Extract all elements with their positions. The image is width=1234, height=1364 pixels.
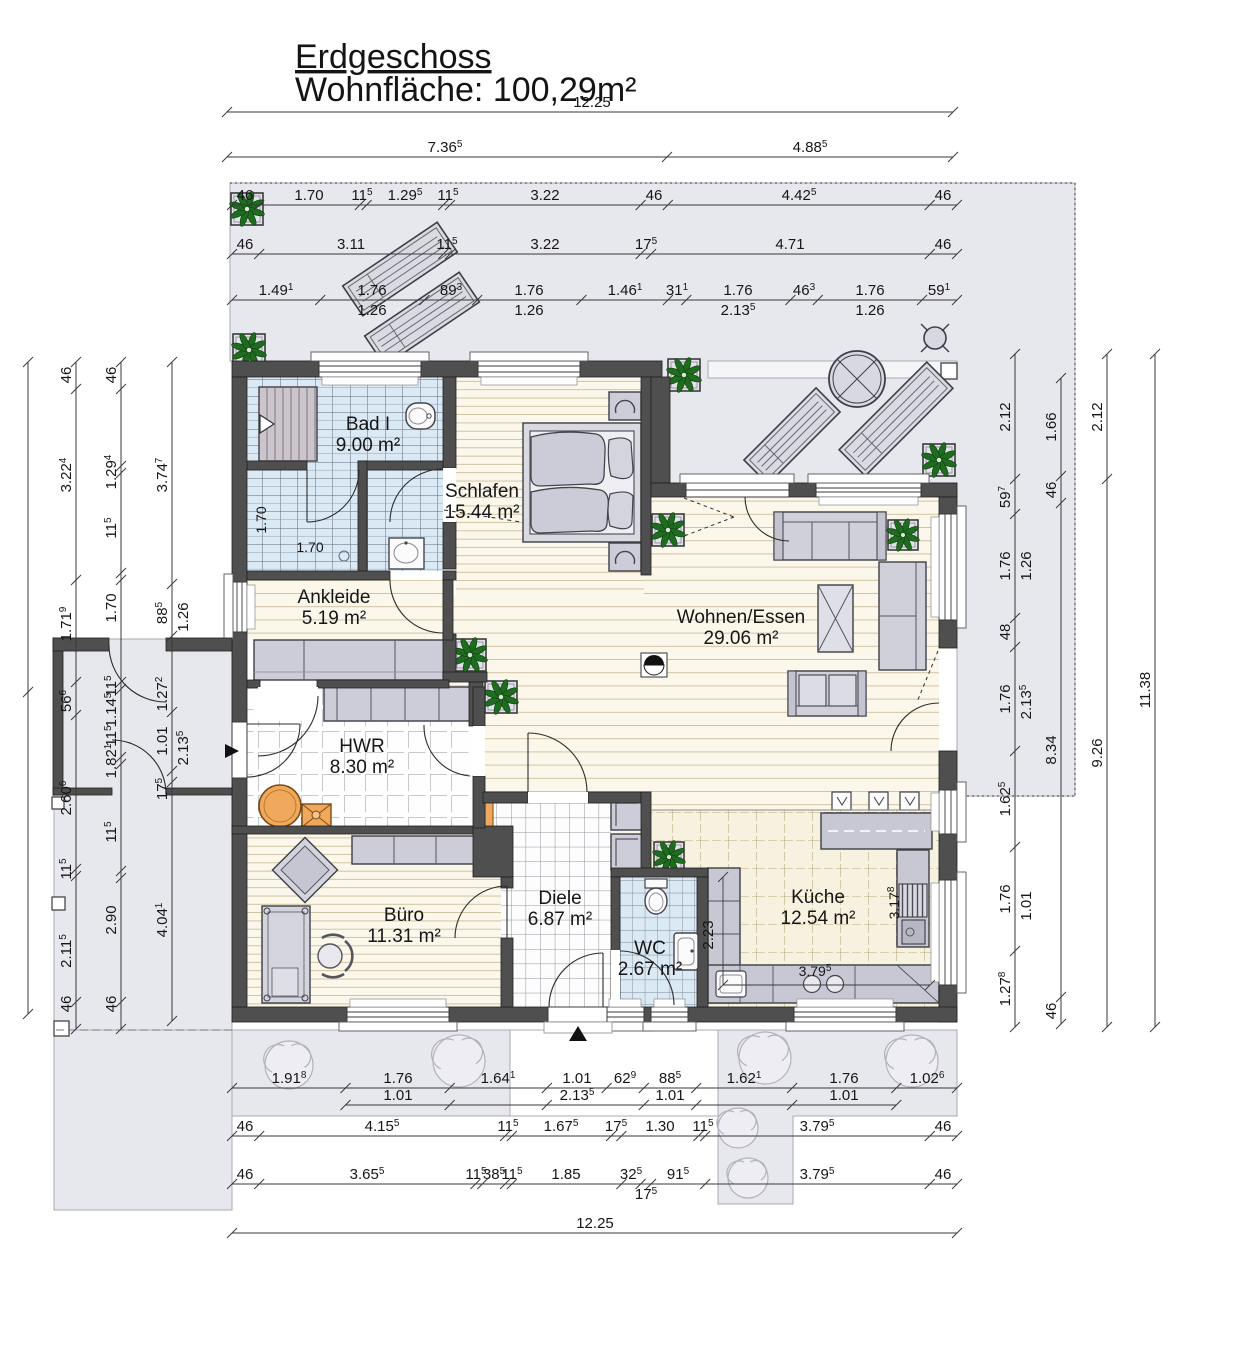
svg-text:1.01: 1.01: [562, 1070, 591, 1087]
svg-text:46: 46: [646, 187, 663, 204]
svg-text:1.85: 1.85: [551, 1166, 580, 1183]
svg-text:1.76: 1.76: [723, 282, 752, 299]
svg-text:1.70: 1.70: [294, 187, 323, 204]
svg-text:1.01: 1.01: [655, 1087, 684, 1104]
svg-text:1.26: 1.26: [855, 302, 884, 319]
svg-text:Ankleide: Ankleide: [298, 587, 371, 608]
svg-text:Wohnen/Essen: Wohnen/Essen: [677, 607, 806, 628]
svg-text:11.31 m²: 11.31 m²: [367, 926, 441, 947]
svg-text:46: 46: [1043, 482, 1060, 499]
svg-text:46: 46: [935, 1166, 952, 1183]
svg-text:46: 46: [58, 367, 75, 384]
svg-text:15.44 m²: 15.44 m²: [445, 502, 520, 523]
svg-text:1.26: 1.26: [175, 602, 192, 631]
svg-text:46: 46: [935, 187, 952, 204]
svg-text:Büro: Büro: [384, 905, 424, 926]
svg-text:46: 46: [237, 1166, 254, 1183]
svg-text:46: 46: [935, 236, 952, 253]
svg-text:46: 46: [237, 236, 254, 253]
svg-text:Bad I: Bad I: [346, 414, 390, 435]
svg-text:1.26: 1.26: [1018, 551, 1035, 580]
svg-text:1.01: 1.01: [154, 726, 171, 755]
svg-text:46: 46: [237, 187, 254, 204]
svg-text:3.11: 3.11: [337, 236, 365, 253]
svg-text:Diele: Diele: [538, 888, 581, 909]
svg-text:1.76: 1.76: [829, 1070, 858, 1087]
svg-text:1.30: 1.30: [645, 1118, 674, 1135]
svg-text:46: 46: [1043, 1003, 1060, 1020]
svg-text:2.67 m²: 2.67 m²: [618, 959, 682, 980]
svg-text:5.19 m²: 5.19 m²: [302, 608, 366, 629]
svg-text:1.01: 1.01: [829, 1087, 858, 1104]
svg-text:1.70: 1.70: [103, 593, 120, 622]
svg-text:1.76: 1.76: [997, 884, 1014, 913]
svg-text:46: 46: [58, 996, 75, 1013]
svg-text:1.76: 1.76: [514, 282, 543, 299]
svg-text:1.76: 1.76: [357, 282, 386, 299]
svg-text:1.26: 1.26: [514, 302, 543, 319]
svg-text:6.87 m²: 6.87 m²: [528, 909, 592, 930]
svg-text:1.76: 1.76: [997, 551, 1014, 580]
svg-text:3.22: 3.22: [530, 236, 559, 253]
svg-text:2.12: 2.12: [1089, 402, 1106, 431]
svg-text:4.71: 4.71: [775, 236, 804, 253]
svg-text:9.26: 9.26: [1089, 738, 1106, 767]
svg-text:HWR: HWR: [339, 736, 384, 757]
svg-text:8.34: 8.34: [1043, 735, 1060, 764]
svg-text:8.30 m²: 8.30 m²: [330, 757, 394, 778]
svg-text:11.38: 11.38: [1137, 672, 1154, 708]
svg-text:1.01: 1.01: [1018, 891, 1035, 920]
svg-text:46: 46: [103, 367, 120, 384]
svg-text:9.00 m²: 9.00 m²: [336, 435, 400, 456]
svg-text:3.22: 3.22: [530, 187, 559, 204]
svg-text:46: 46: [935, 1118, 952, 1135]
svg-text:1.76: 1.76: [855, 282, 884, 299]
svg-text:46: 46: [237, 1118, 254, 1135]
svg-text:2.23: 2.23: [700, 920, 717, 949]
svg-text:2.90: 2.90: [103, 905, 120, 934]
svg-text:1.70: 1.70: [253, 506, 269, 533]
svg-text:2.12: 2.12: [997, 402, 1014, 431]
svg-text:Wohnfläche: 100,29m²: Wohnfläche: 100,29m²: [295, 71, 636, 109]
svg-text:WC: WC: [634, 938, 666, 959]
svg-text:Schlafen: Schlafen: [445, 481, 519, 502]
svg-text:12.25: 12.25: [576, 1215, 614, 1232]
svg-text:48: 48: [997, 624, 1014, 641]
svg-text:1.26: 1.26: [357, 302, 386, 319]
svg-text:1.76: 1.76: [997, 684, 1014, 713]
svg-text:Küche: Küche: [791, 887, 845, 908]
svg-text:1.01: 1.01: [383, 1087, 412, 1104]
svg-text:1.70: 1.70: [296, 539, 323, 555]
svg-text:12.54 m²: 12.54 m²: [781, 908, 856, 929]
svg-text:1.66: 1.66: [1043, 412, 1060, 441]
svg-text:46: 46: [103, 996, 120, 1013]
svg-text:29.06 m²: 29.06 m²: [704, 628, 779, 649]
svg-text:1.76: 1.76: [383, 1070, 412, 1087]
